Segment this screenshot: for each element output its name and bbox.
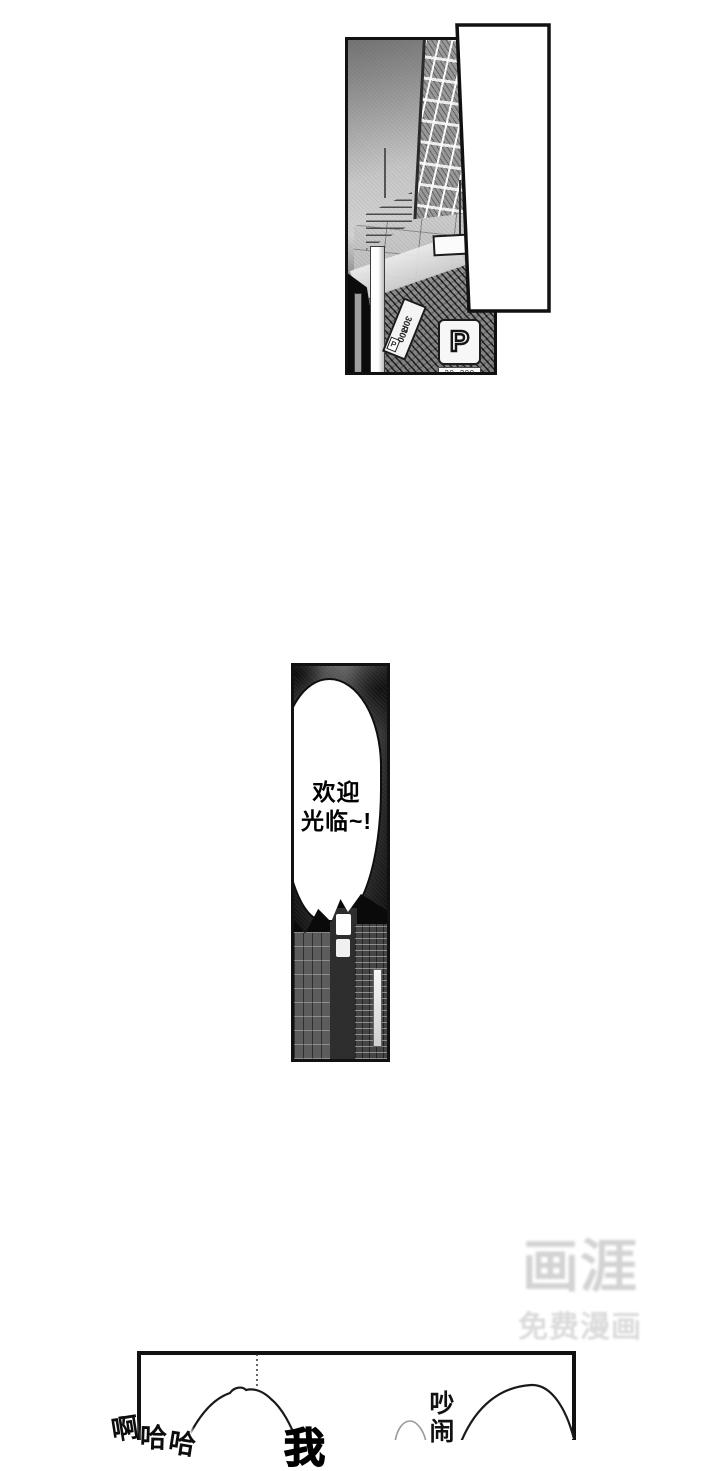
panel-street-scene: P 30P 300 P 30..300	[345, 37, 497, 375]
parking-sign-letter: P	[450, 328, 469, 357]
manga-page[interactable]: P 30P 300 P 30..300 欢迎 光临~! 画	[0, 0, 720, 1440]
billboard-cable	[459, 180, 461, 238]
lit-sign-strip	[373, 969, 382, 1047]
city-building-right	[355, 924, 387, 1059]
watermark-logo: 画涯	[512, 1238, 648, 1298]
laugh-text: 啊哈哈	[110, 1406, 197, 1447]
watermark-subtitle: 免费漫画	[512, 1302, 648, 1346]
city-building-mid	[330, 908, 357, 1059]
skyscraper-building	[413, 37, 497, 228]
laugh-char: 哈	[165, 1419, 200, 1464]
city-building-left	[294, 932, 332, 1059]
lit-window	[336, 914, 351, 935]
site-watermark: 画涯 免费漫画	[512, 1238, 648, 1346]
price-sign-line2: 300	[394, 326, 410, 344]
laugh-char: 啊	[107, 1404, 142, 1449]
parking-sign-caption: 30..300	[438, 367, 481, 375]
parking-sign: P	[438, 319, 481, 365]
billboard-sign	[432, 233, 487, 257]
welcome-line2: 光临~!	[294, 807, 379, 836]
utility-pole	[370, 246, 385, 375]
laugh-char: 哈	[138, 1415, 168, 1457]
panel-crowd	[137, 1351, 576, 1440]
shout-char: 闹	[426, 1418, 458, 1446]
panel-welcome: 欢迎 光临~!	[291, 663, 390, 1062]
welcome-line1: 欢迎	[294, 778, 379, 807]
sign-pole	[354, 293, 362, 375]
shout-char: 吵	[426, 1390, 458, 1418]
shout-text: 吵 闹	[426, 1390, 458, 1446]
antenna-line	[384, 148, 386, 198]
speech-bubble-text: 欢迎 光临~!	[294, 778, 379, 836]
lit-window	[336, 939, 350, 957]
partial-bold-text: 我	[284, 1428, 325, 1469]
